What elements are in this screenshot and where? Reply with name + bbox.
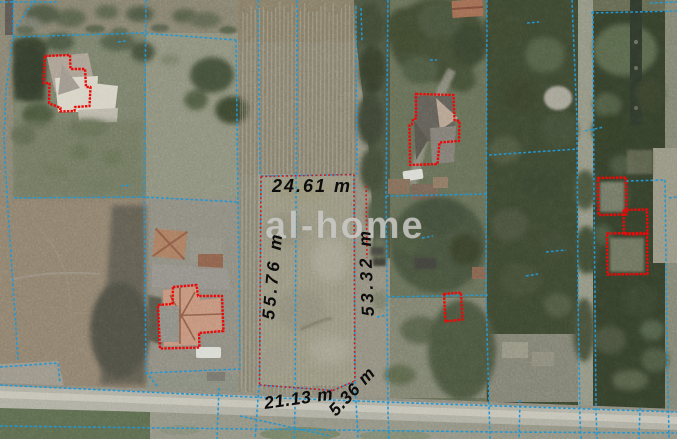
svg-text:24.61 m: 24.61 m xyxy=(271,176,352,196)
svg-text:al-home: al-home xyxy=(265,205,425,247)
svg-text:53.32 m: 53.32 m xyxy=(354,227,378,317)
